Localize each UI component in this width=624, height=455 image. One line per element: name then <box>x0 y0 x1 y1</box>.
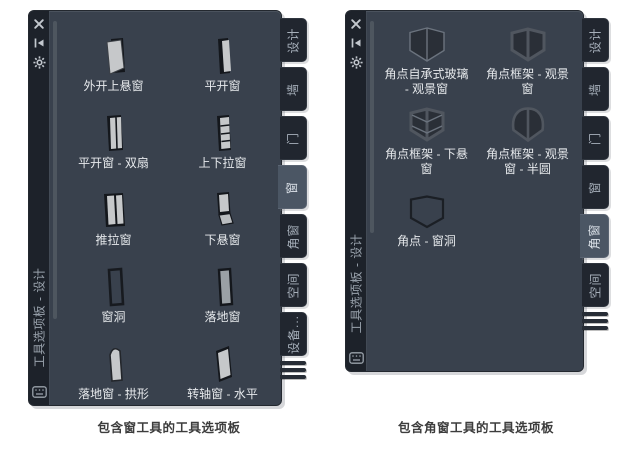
tool-item-label: 角点框架 - 观景窗 <box>486 67 570 97</box>
corner-window-opening-icon <box>404 193 450 234</box>
corner-frame-picture-window-icon <box>505 26 551 67</box>
palette-titlebar[interactable]: 工具选项板 - 设计 <box>346 11 366 371</box>
tool-item-label: 平开窗 <box>204 79 240 94</box>
keyboard-icon[interactable] <box>349 352 364 364</box>
bottom-hung-window-icon <box>205 190 241 233</box>
tool-item[interactable]: 上下拉窗 <box>168 94 277 171</box>
tool-item[interactable]: 下悬窗 <box>168 171 277 248</box>
tab-window[interactable]: 窗 <box>278 165 307 209</box>
tab-design[interactable]: 设计 <box>280 18 307 62</box>
tool-item-label: 窗洞 <box>101 310 125 325</box>
close-icon[interactable] <box>33 18 45 30</box>
tool-item[interactable]: 平开窗 - 双扇 <box>59 94 168 171</box>
tab-door[interactable]: 门 <box>582 116 609 160</box>
close-icon[interactable] <box>350 18 362 30</box>
figure-caption-corner-windows: 包含角窗工具的工具选项板 <box>340 417 612 436</box>
tool-item-label: 角点框架 - 下悬窗 <box>385 147 469 177</box>
double-hung-window-icon <box>206 113 240 156</box>
more-tabs-indicator[interactable] <box>582 319 608 323</box>
palette-title[interactable]: 工具选项板 - 设计 <box>346 221 366 345</box>
floor-window-arched-icon <box>97 344 131 387</box>
more-tabs-indicator[interactable] <box>280 375 306 379</box>
tab-window[interactable]: 窗 <box>582 165 609 209</box>
more-tabs-indicator[interactable] <box>582 326 608 330</box>
tab-wall[interactable]: 墙 <box>582 67 609 111</box>
tab-equipment[interactable]: 设备... <box>280 312 307 356</box>
keyboard-icon[interactable] <box>32 386 47 398</box>
tool-item[interactable]: 推拉窗 <box>59 171 168 248</box>
palette-body: 角点自承式玻璃 - 观景窗 角点框架 - 观景窗 角点框架 - 下悬窗 <box>366 11 583 371</box>
tab-door[interactable]: 门 <box>280 116 307 160</box>
tool-palette-windows: 工具选项板 - 设计 外开上悬窗 平开窗 <box>28 10 282 406</box>
tool-item[interactable]: 角点自承式玻璃 - 观景窗 <box>376 17 477 97</box>
corner-frame-picture-window-semicircle-icon <box>505 106 551 147</box>
floor-window-icon <box>206 267 240 310</box>
figure-caption-windows: 包含窗工具的工具选项板 <box>28 417 310 436</box>
tool-item-label: 平开窗 - 双扇 <box>78 156 149 171</box>
tool-item-label: 外开上悬窗 <box>83 79 143 94</box>
scrollbar[interactable] <box>53 21 57 319</box>
gear-icon[interactable] <box>33 56 46 69</box>
tab-corner-window[interactable]: 角窗 <box>580 214 609 258</box>
tool-item[interactable]: 落地窗 <box>168 248 277 325</box>
tool-item[interactable]: 角点框架 - 观景窗 <box>477 17 578 97</box>
corner-frame-bottom-hung-window-icon <box>404 106 450 147</box>
autohide-pin-icon[interactable] <box>350 37 362 49</box>
tool-item[interactable]: 外开上悬窗 <box>59 17 168 94</box>
tool-item[interactable]: 角点框架 - 下悬窗 <box>376 97 477 177</box>
tool-item-label: 角点框架 - 观景窗 - 半圆 <box>486 147 570 177</box>
more-tabs-indicator[interactable] <box>280 361 306 365</box>
tab-corner-window[interactable]: 角窗 <box>280 214 307 258</box>
tab-space[interactable]: 空间 <box>582 263 609 307</box>
tool-item-label: 推拉窗 <box>95 233 131 248</box>
tool-item[interactable]: 转轴窗 - 水平 <box>168 325 277 402</box>
tool-item-label: 上下拉窗 <box>198 156 246 171</box>
window-opening-icon <box>97 267 131 310</box>
more-tabs-indicator[interactable] <box>280 368 306 372</box>
tool-item[interactable]: 窗洞 <box>59 248 168 325</box>
palette-title[interactable]: 工具选项板 - 设计 <box>29 255 49 379</box>
tool-item-label: 下悬窗 <box>204 233 240 248</box>
casement-window-icon <box>206 36 240 79</box>
tab-wall[interactable]: 墙 <box>280 67 307 111</box>
scrollbar[interactable] <box>370 21 374 233</box>
tool-item-label: 角点自承式玻璃 - 观景窗 <box>385 67 469 97</box>
sliding-window-icon <box>96 190 132 233</box>
tool-item[interactable]: 角点框架 - 观景窗 - 半圆 <box>477 97 578 177</box>
tool-item-label: 落地窗 - 拱形 <box>78 387 149 402</box>
palette-titlebar[interactable]: 工具选项板 - 设计 <box>29 11 49 405</box>
tool-palette-corner-windows: 工具选项板 - 设计 角点自承式玻璃 - 观景窗 角点框架 - 观景窗 <box>345 10 584 372</box>
palette-body: 外开上悬窗 平开窗 平开窗 - 双扇 <box>49 11 281 405</box>
gear-icon[interactable] <box>350 56 363 69</box>
autohide-pin-icon[interactable] <box>33 37 45 49</box>
tool-item[interactable]: 平开窗 <box>168 17 277 94</box>
tab-design[interactable]: 设计 <box>582 18 609 62</box>
tool-item-label: 角点 - 窗洞 <box>397 234 456 249</box>
pivot-window-horizontal-icon <box>205 344 241 387</box>
tab-space[interactable]: 空间 <box>280 263 307 307</box>
top-hung-out-window-icon <box>97 36 131 79</box>
tool-item-label: 转轴窗 - 水平 <box>187 387 258 402</box>
casement-double-window-icon <box>97 113 131 156</box>
tool-item-label: 落地窗 <box>204 310 240 325</box>
corner-self-supporting-glass-window-icon <box>404 26 450 67</box>
more-tabs-indicator[interactable] <box>582 312 608 316</box>
tool-item[interactable]: 角点 - 窗洞 <box>376 177 477 249</box>
tool-item[interactable]: 落地窗 - 拱形 <box>59 325 168 402</box>
